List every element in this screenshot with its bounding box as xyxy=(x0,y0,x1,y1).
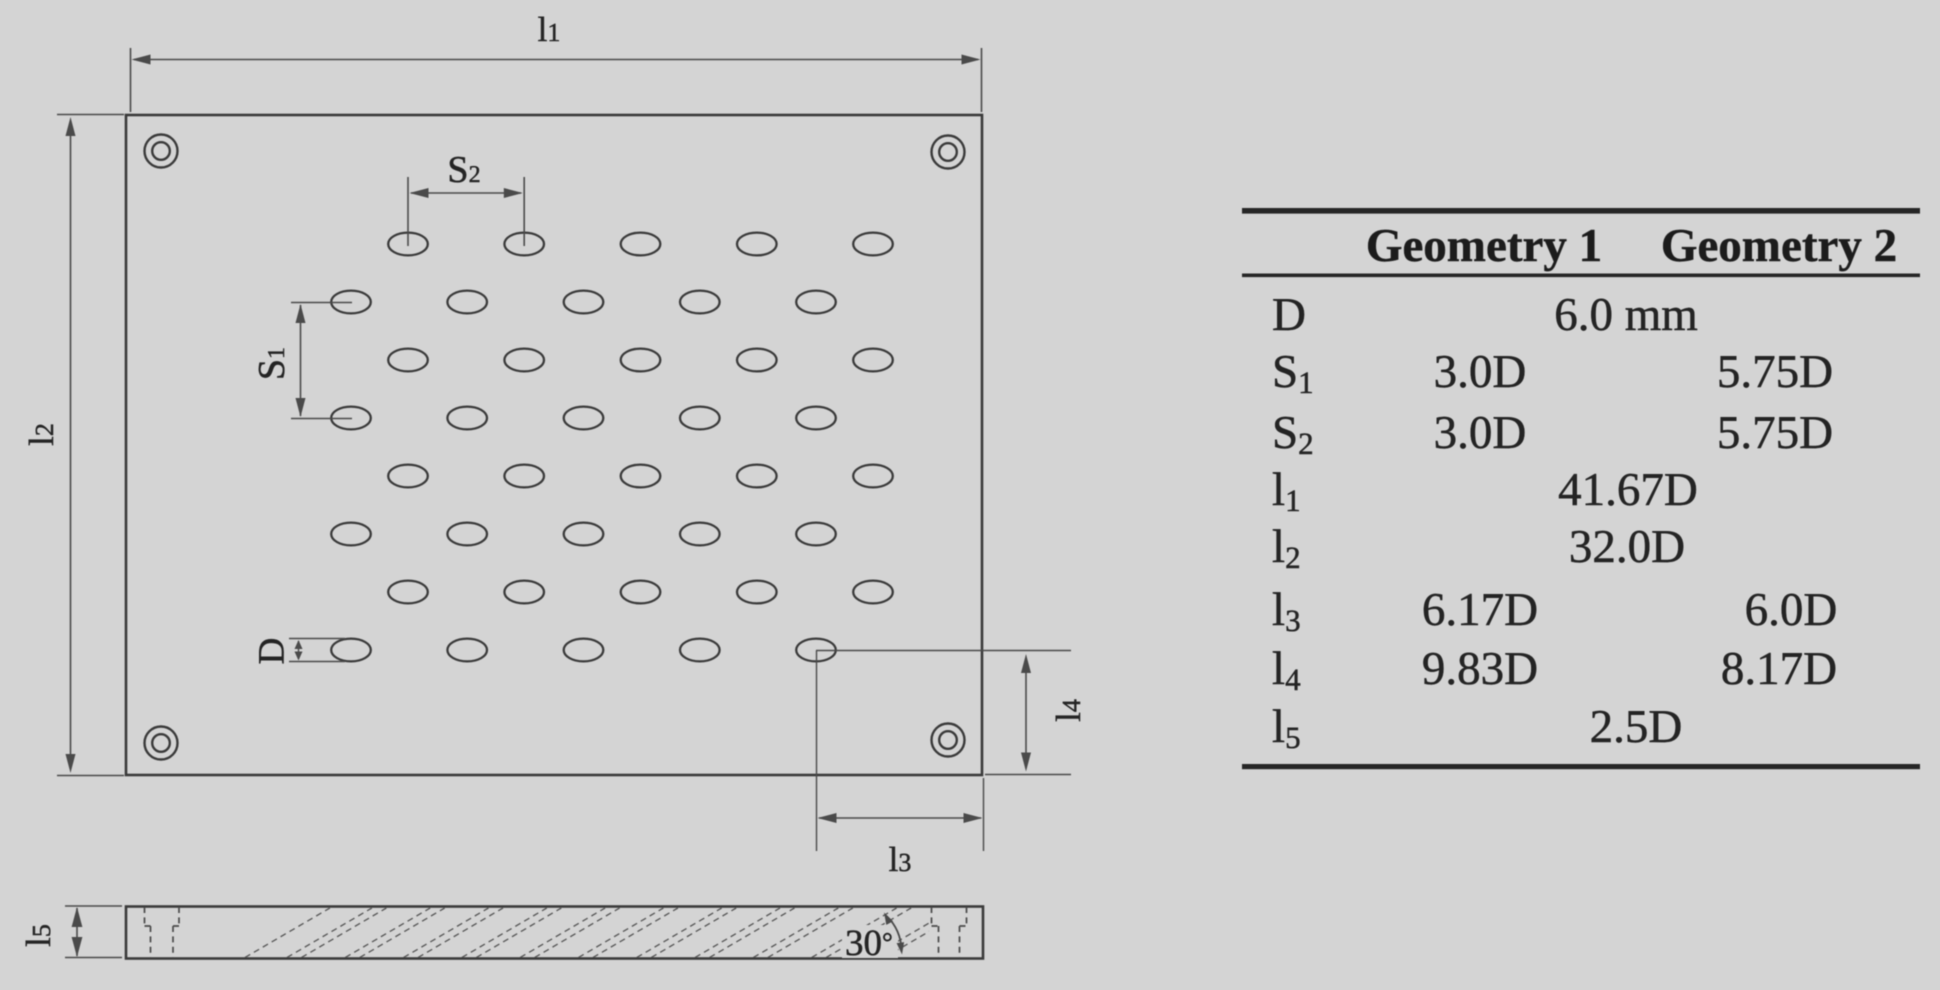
svg-text:8.17D: 8.17D xyxy=(1721,643,1837,695)
svg-text:l1: l1 xyxy=(538,10,561,49)
svg-text:5.75D: 5.75D xyxy=(1717,407,1833,459)
svg-text:3.0D: 3.0D xyxy=(1434,346,1527,398)
svg-text:l3: l3 xyxy=(889,840,912,879)
svg-text:l3: l3 xyxy=(1272,584,1301,638)
svg-text:D: D xyxy=(1272,289,1306,341)
svg-text:l4: l4 xyxy=(1049,699,1088,722)
svg-text:S2: S2 xyxy=(447,149,480,191)
svg-text:3.0D: 3.0D xyxy=(1434,407,1527,459)
svg-text:2.5D: 2.5D xyxy=(1590,701,1683,753)
svg-text:6.17D: 6.17D xyxy=(1422,584,1538,636)
svg-text:S2: S2 xyxy=(1272,407,1314,461)
svg-text:6.0D: 6.0D xyxy=(1745,584,1838,636)
svg-text:9.83D: 9.83D xyxy=(1422,643,1538,695)
svg-text:l2: l2 xyxy=(1272,521,1301,575)
svg-text:32.0D: 32.0D xyxy=(1569,521,1685,573)
svg-text:41.67D: 41.67D xyxy=(1558,464,1698,516)
svg-text:S1: S1 xyxy=(251,347,293,380)
svg-text:l5: l5 xyxy=(19,924,58,947)
svg-text:Geometry 1: Geometry 1 xyxy=(1366,220,1602,272)
svg-text:S1: S1 xyxy=(1272,346,1314,400)
svg-text:Geometry 2: Geometry 2 xyxy=(1661,220,1897,272)
svg-text:l2: l2 xyxy=(22,423,61,446)
svg-text:l1: l1 xyxy=(1272,464,1301,518)
svg-text:l4: l4 xyxy=(1272,643,1301,697)
svg-text:D: D xyxy=(252,638,293,665)
svg-text:l5: l5 xyxy=(1272,701,1301,755)
svg-text:5.75D: 5.75D xyxy=(1717,346,1833,398)
svg-text:6.0 mm: 6.0 mm xyxy=(1554,289,1698,341)
